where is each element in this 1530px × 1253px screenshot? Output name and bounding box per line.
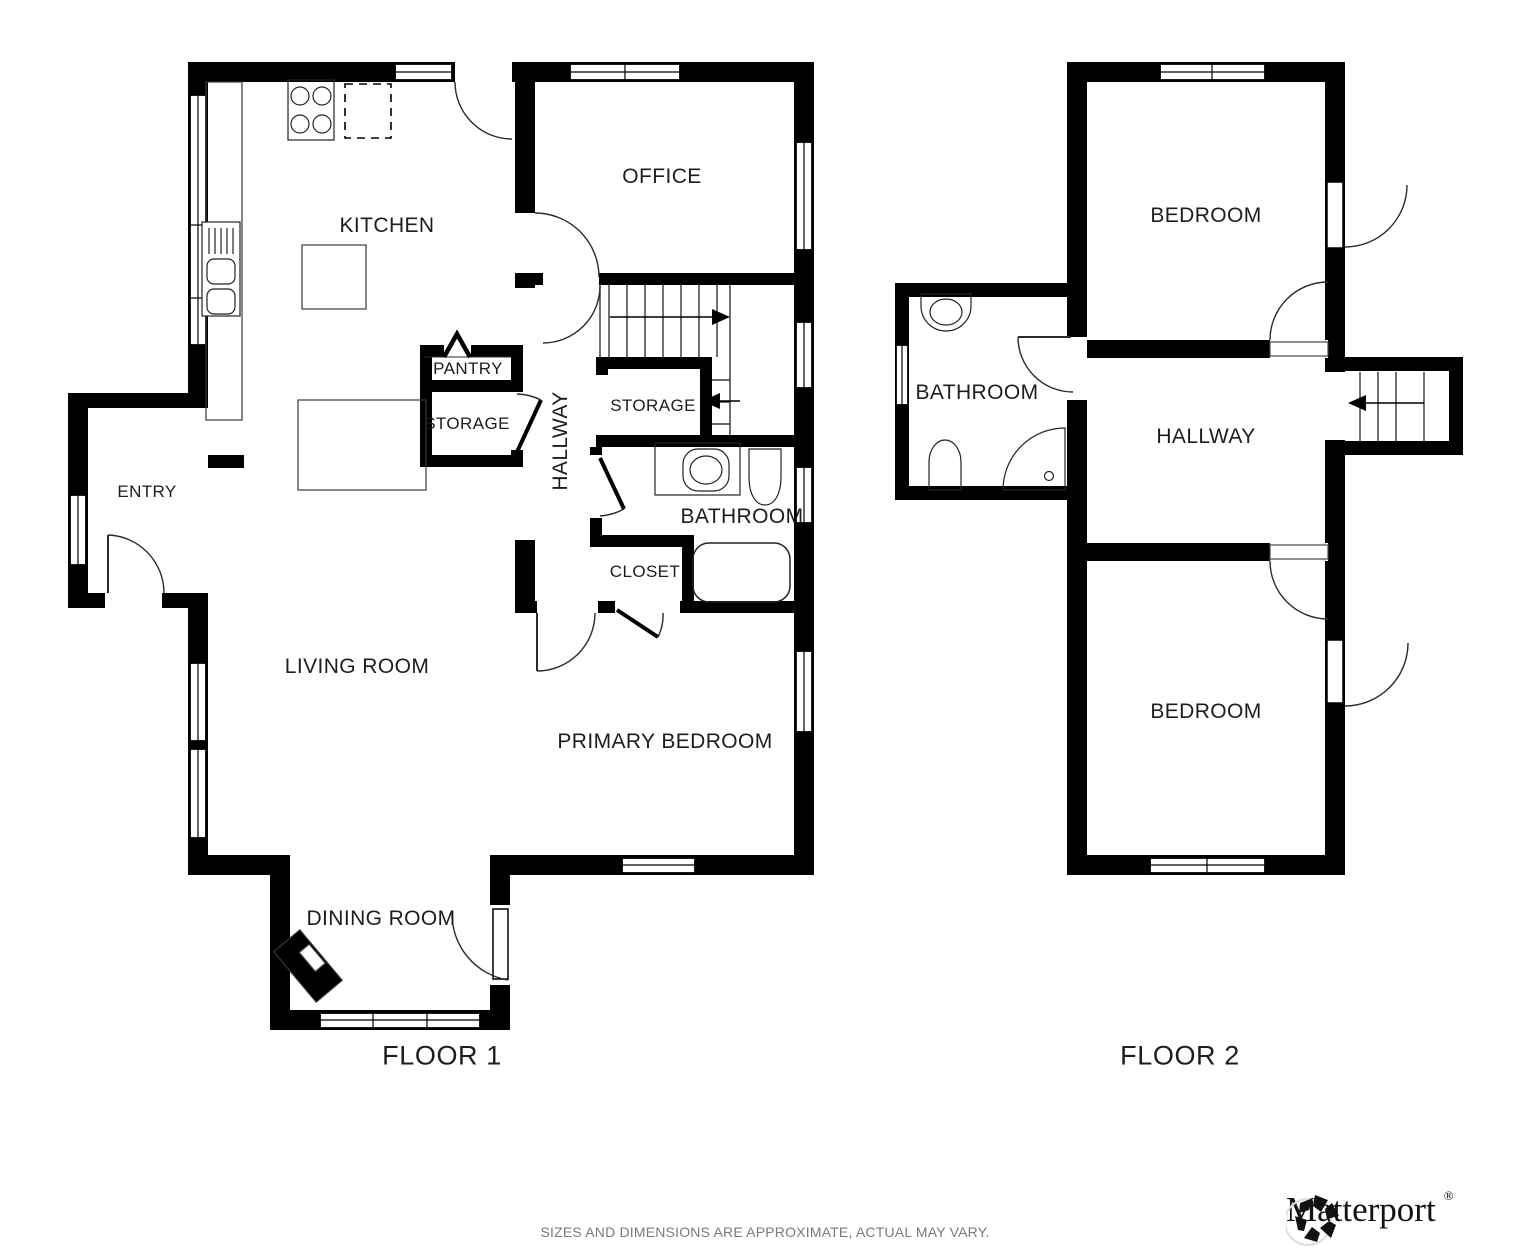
shower-icon [1003, 428, 1065, 490]
room-label-hallway-f2: HALLWAY [1156, 425, 1255, 449]
matterport-logo-icon [1286, 1190, 1344, 1248]
bathtub-icon [693, 543, 790, 602]
floor2-walls [895, 62, 1463, 875]
room-label-office: OFFICE [622, 165, 701, 189]
room-label-entry: ENTRY [117, 482, 176, 502]
room-label-bedroom-top: BEDROOM [1150, 204, 1261, 228]
floor2-title: FLOOR 2 [1120, 1041, 1240, 1072]
floor1-title: FLOOR 1 [382, 1041, 502, 1072]
toilet-icon [929, 440, 961, 490]
room-label-storage-a: STORAGE [424, 414, 510, 434]
room-label-living-room: LIVING ROOM [285, 655, 429, 679]
floorplan-page: KITCHEN OFFICE PANTRY STORAGE HALLWAY ST… [0, 0, 1530, 1253]
room-label-bathroom-f1: BATHROOM [681, 505, 804, 529]
room-label-closet: CLOSET [610, 562, 680, 582]
disclaimer-text: SIZES AND DIMENSIONS ARE APPROXIMATE, AC… [540, 1224, 989, 1240]
kitchen-table-icon [298, 400, 426, 490]
kitchen-island-icon [302, 245, 366, 309]
dishwasher-icon [345, 84, 391, 138]
matterport-logo: Matterport® [1286, 1190, 1454, 1230]
floor1-walls [68, 62, 814, 1030]
room-label-dining-room: DINING ROOM [306, 907, 455, 931]
toilet-icon [749, 449, 781, 505]
vanity-sink-icon [655, 443, 740, 495]
room-label-bedroom-bottom: BEDROOM [1150, 700, 1261, 724]
vanity-sink-icon [921, 294, 971, 331]
room-label-storage-b: STORAGE [610, 396, 696, 416]
stairs-up-arrow-icon [610, 309, 730, 325]
counter-sink-icon [202, 222, 240, 316]
floor2-stairs [1348, 372, 1424, 441]
room-label-pantry: PANTRY [433, 359, 503, 379]
room-label-kitchen: KITCHEN [340, 214, 435, 238]
floor2-openings [1067, 337, 1345, 561]
floorplan-drawing [0, 0, 1530, 1253]
stove-icon [288, 80, 334, 140]
room-label-hallway-f1: HALLWAY [549, 391, 573, 490]
room-label-bathroom-f2: BATHROOM [916, 381, 1039, 405]
room-label-primary-bedroom: PRIMARY BEDROOM [557, 730, 772, 754]
floor1-openings [188, 62, 512, 875]
registered-mark: ® [1444, 1188, 1454, 1204]
